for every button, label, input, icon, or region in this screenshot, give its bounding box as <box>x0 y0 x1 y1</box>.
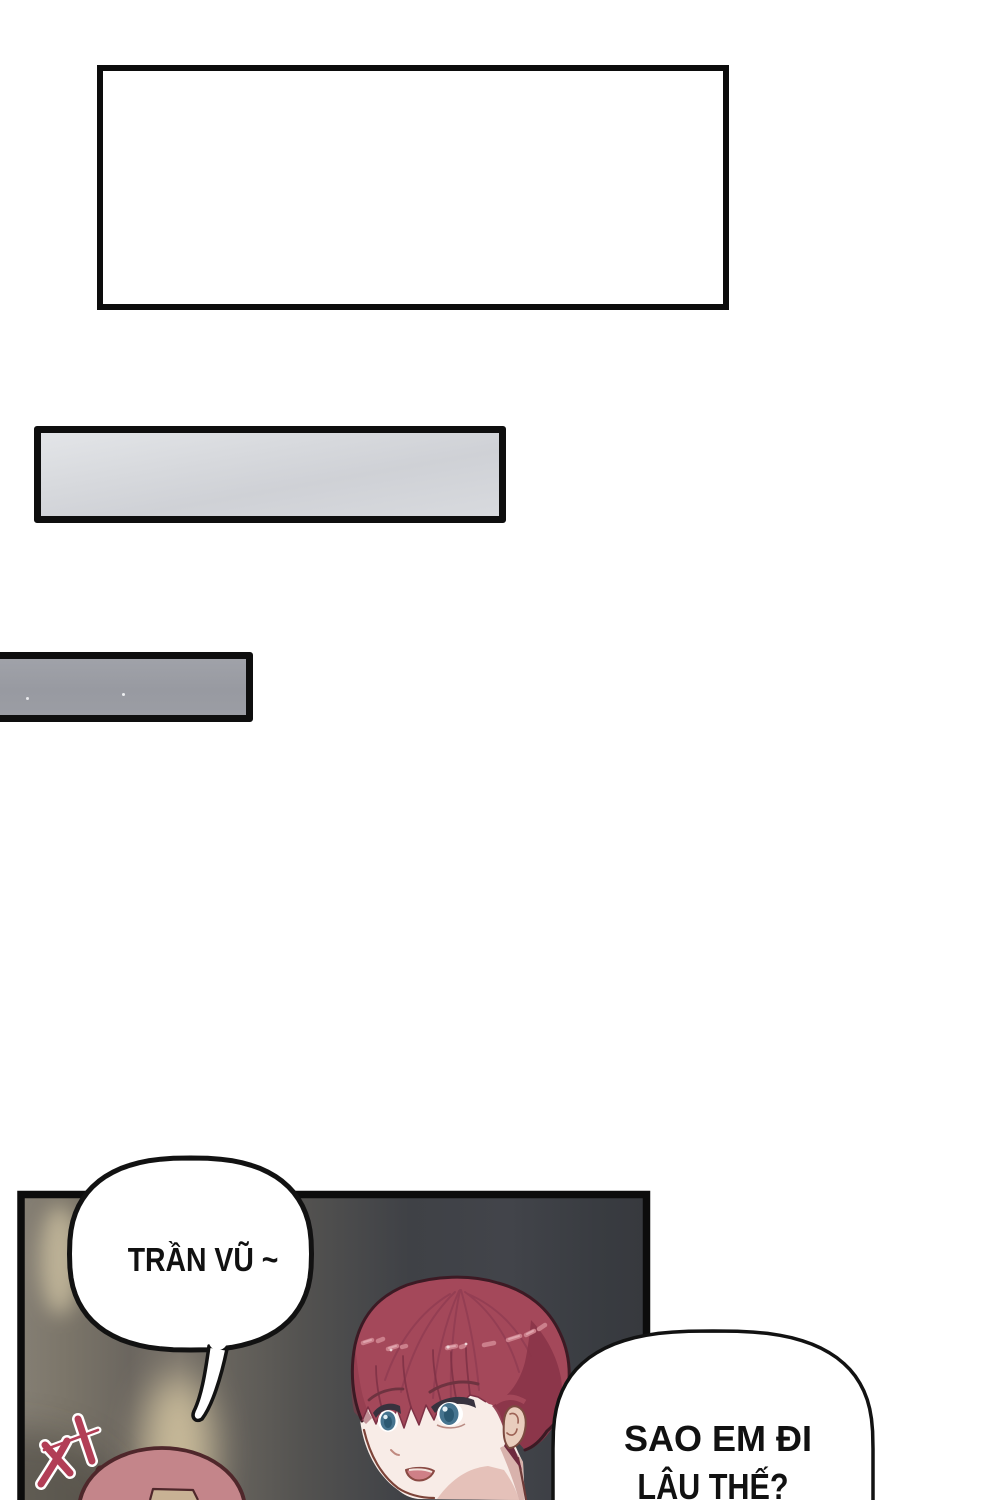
svg-text:LÂU THẾ?: LÂU THẾ? <box>637 1467 788 1500</box>
svg-text:TRẦN VŨ ~: TRẦN VŨ ~ <box>128 1240 279 1279</box>
svg-text:SAO EM ĐI: SAO EM ĐI <box>624 1418 812 1459</box>
